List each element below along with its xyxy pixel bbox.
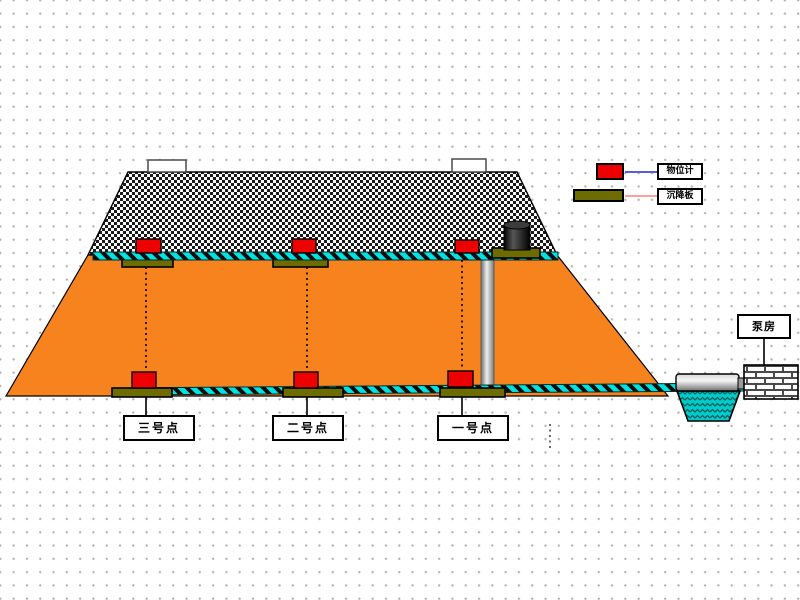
level-gauge-icon (132, 372, 156, 388)
legend-swatch-settlement-plate (573, 189, 624, 202)
level-gauge-icon (294, 372, 318, 388)
sensor-cylinder-top (504, 221, 530, 229)
level-gauge-icon (136, 239, 161, 253)
settlement-plate-icon (283, 388, 343, 397)
settlement-plate-icon (112, 388, 172, 397)
legend-line-level-gauge (625, 171, 657, 173)
standpipe-vertical (481, 253, 494, 390)
level-gauge-icon (448, 371, 473, 387)
crest-marker-box (452, 159, 486, 172)
brick-well (744, 365, 798, 399)
pump-house-label: 泵房 (737, 314, 791, 339)
dam-body (6, 255, 668, 396)
point-label-2: 二号点 (272, 415, 344, 441)
level-gauge-icon (455, 240, 479, 253)
point-label-3: 三号点 (123, 415, 195, 441)
dam-schematic (0, 0, 800, 600)
water-sump (677, 391, 740, 421)
settlement-plate-icon (440, 388, 505, 397)
legend-swatch-level-gauge (596, 163, 624, 180)
legend-label-settlement-plate: 沉降板 (657, 188, 703, 205)
point-label-1: 一号点 (437, 415, 509, 441)
crest-marker-box (148, 160, 186, 172)
hmi-canvas: 物位计 沉降板 三号点 二号点 一号点 泵房 (0, 0, 800, 600)
legend-line-settlement-plate (625, 195, 657, 197)
pump-cylinder (676, 374, 739, 391)
level-gauge-icon (292, 239, 316, 253)
monitoring-cable-upper (93, 252, 558, 260)
legend-label-level-gauge: 物位计 (657, 163, 703, 180)
